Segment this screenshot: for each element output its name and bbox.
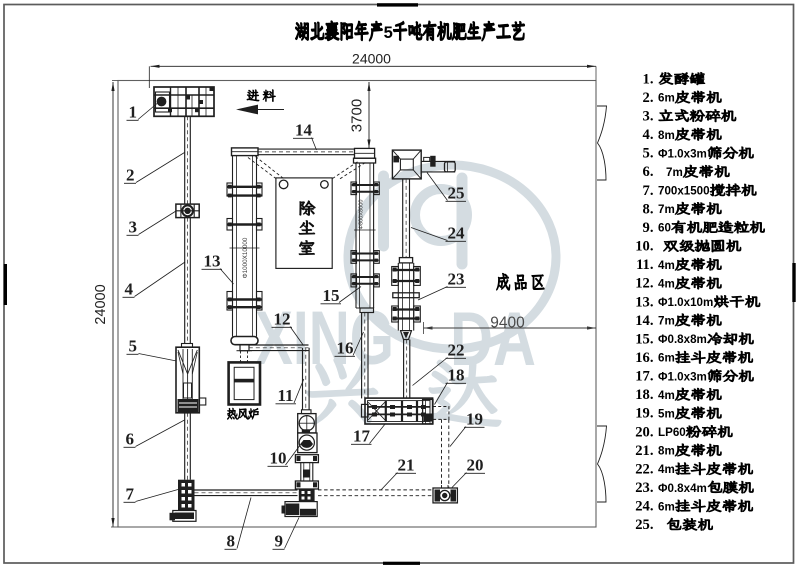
svg-text:3: 3 [129,218,138,237]
svg-text:9.: 9. [643,220,654,236]
svg-text:12: 12 [274,310,291,329]
svg-text:10: 10 [270,449,287,468]
svg-text:17: 17 [353,427,371,446]
svg-text:7.: 7. [643,183,654,199]
svg-text:16.: 16. [635,350,653,366]
svg-text:8m: 8m [658,129,675,142]
svg-text:19: 19 [466,410,483,429]
svg-text:15.: 15. [635,331,653,347]
svg-text:60: 60 [658,222,671,235]
svg-text:2: 2 [126,166,135,185]
svg-text:20: 20 [467,456,484,475]
svg-text:8m: 8m [658,445,675,458]
svg-text:14: 14 [295,121,313,140]
svg-text:Φ1.0x3m: Φ1.0x3m [658,370,707,383]
svg-text:25: 25 [448,184,465,203]
svg-text:11: 11 [278,386,294,405]
svg-text:12.: 12. [635,276,653,292]
svg-text:23.: 23. [635,480,653,496]
svg-text:9400: 9400 [490,315,525,332]
svg-text:22.: 22. [635,461,653,477]
svg-text:23: 23 [448,270,465,289]
svg-text:21: 21 [398,456,415,475]
svg-text:19.: 19. [635,406,653,422]
svg-text:3700: 3700 [349,99,366,132]
svg-text:Φ1000X10000: Φ1000X10000 [242,237,249,278]
svg-text:4: 4 [125,280,134,299]
svg-text:20.: 20. [635,424,653,440]
svg-text:Φ1.0x10m: Φ1.0x10m [658,296,713,309]
svg-text:6m: 6m [658,352,675,365]
svg-text:2.: 2. [643,90,654,106]
svg-text:5.: 5. [643,146,654,162]
svg-text:5: 5 [384,24,393,42]
svg-text:11.: 11. [636,257,653,273]
svg-text:6.: 6. [643,164,654,180]
svg-text:Φ0.8x8m: Φ0.8x8m [658,333,707,346]
svg-text:5m: 5m [658,408,675,421]
svg-text:4m: 4m [658,389,675,402]
svg-text:9: 9 [275,532,284,551]
svg-text:6m: 6m [658,92,675,105]
svg-text:24.: 24. [635,499,653,515]
svg-text:Φ1.0x3m: Φ1.0x3m [658,147,707,160]
svg-text:1: 1 [129,103,138,122]
svg-text:24: 24 [448,224,466,243]
svg-text:6m: 6m [658,500,675,513]
svg-text:15: 15 [323,286,340,305]
svg-text:22: 22 [448,341,465,360]
svg-text:25.: 25. [635,517,653,533]
svg-text:17.: 17. [635,369,653,385]
svg-text:4.: 4. [643,127,654,143]
svg-text:18.: 18. [635,387,653,403]
svg-text:5: 5 [129,337,138,356]
svg-text:Φ800X8000: Φ800X8000 [358,200,364,230]
svg-text:10.: 10. [635,239,653,255]
svg-text:13.: 13. [635,294,653,310]
svg-text:LP60: LP60 [658,426,686,439]
svg-text:8.: 8. [643,201,654,217]
svg-text:6: 6 [126,430,135,449]
svg-text:Φ0.8x4m: Φ0.8x4m [658,482,707,495]
svg-text:8: 8 [227,532,236,551]
svg-text:21.: 21. [635,443,653,459]
svg-text:18: 18 [448,366,465,385]
svg-text:24000: 24000 [93,284,109,324]
svg-text:13: 13 [204,252,221,271]
svg-text:24000: 24000 [352,51,391,67]
svg-text:1.: 1. [643,71,654,87]
svg-text:14.: 14. [635,313,653,329]
svg-text:7m: 7m [666,166,683,179]
svg-text:4m: 4m [658,259,675,272]
svg-text:4m: 4m [658,463,675,476]
svg-text:16: 16 [337,339,354,358]
svg-text:7m: 7m [658,315,675,328]
svg-text:7m: 7m [658,203,675,216]
svg-text:4m: 4m [658,277,675,290]
svg-text:7: 7 [126,485,135,504]
svg-text:700x1500: 700x1500 [658,185,710,198]
svg-text:3.: 3. [643,108,654,124]
